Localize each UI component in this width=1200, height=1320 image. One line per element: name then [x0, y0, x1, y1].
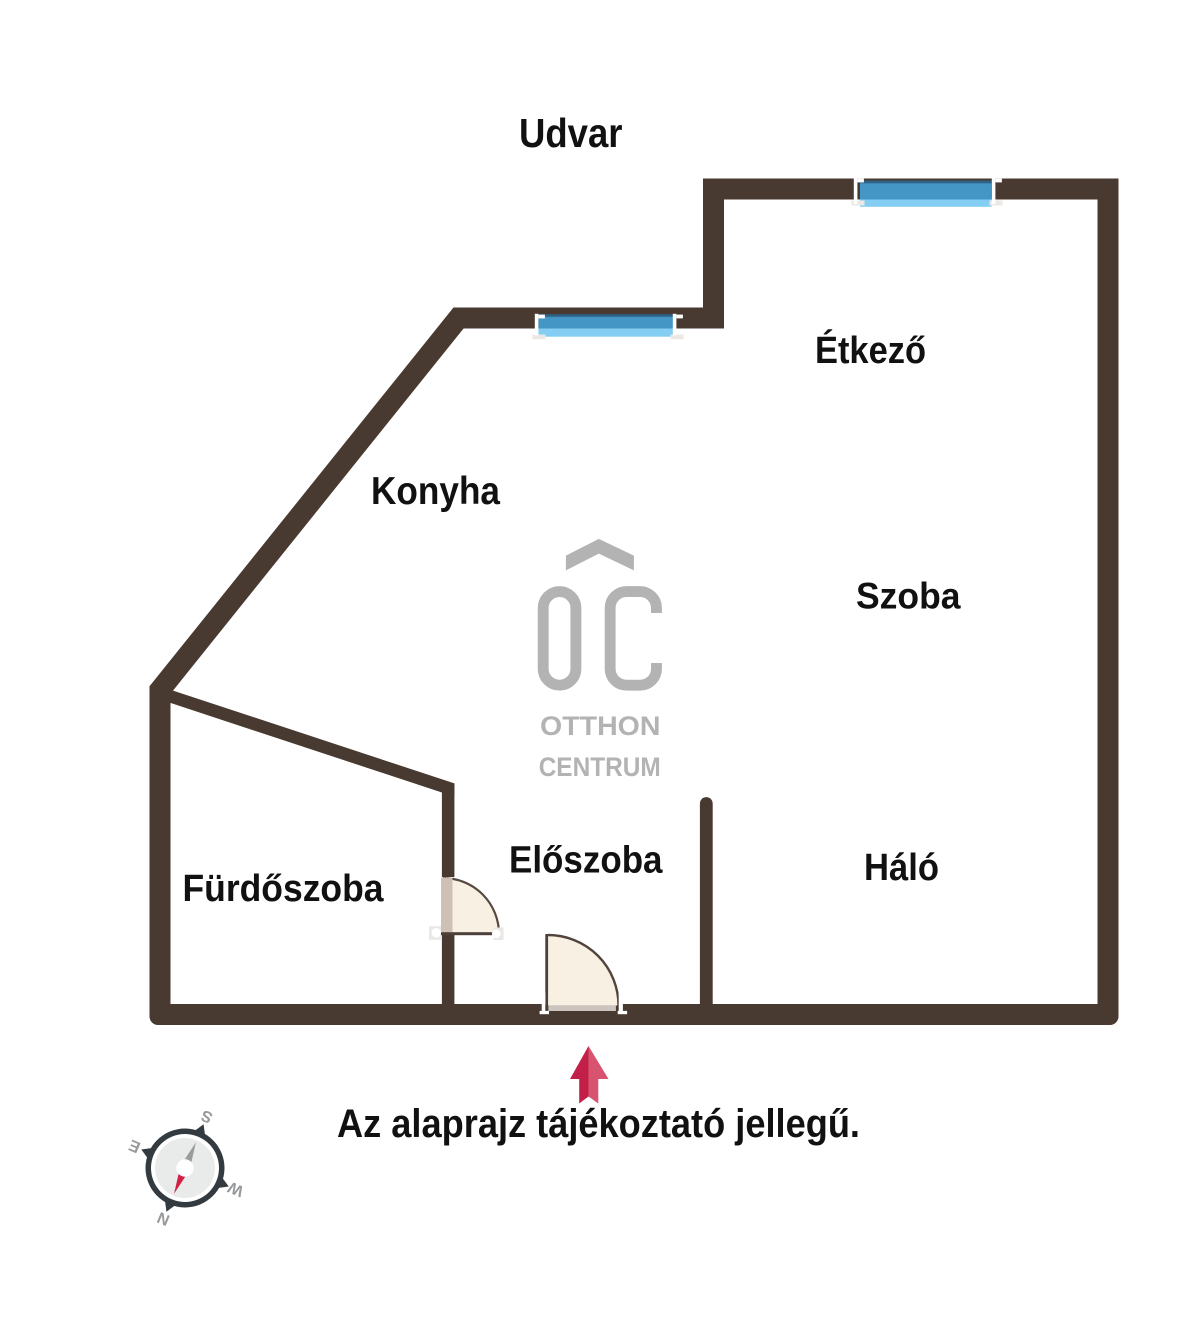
- svg-text:Konyha: Konyha: [371, 470, 500, 513]
- svg-text:Szoba: Szoba: [856, 576, 961, 617]
- svg-text:Udvar: Udvar: [519, 110, 623, 156]
- svg-text:CENTRUM: CENTRUM: [539, 752, 661, 782]
- svg-text:Előszoba: Előszoba: [509, 840, 663, 882]
- svg-text:Háló: Háló: [864, 847, 939, 889]
- svg-text:OTTHON: OTTHON: [540, 711, 661, 741]
- svg-text:Fürdőszoba: Fürdőszoba: [183, 868, 385, 910]
- svg-text:Az alaprajz tájékoztató jelleg: Az alaprajz tájékoztató jellegű.: [337, 1102, 860, 1146]
- svg-text:Étkező: Étkező: [815, 328, 926, 372]
